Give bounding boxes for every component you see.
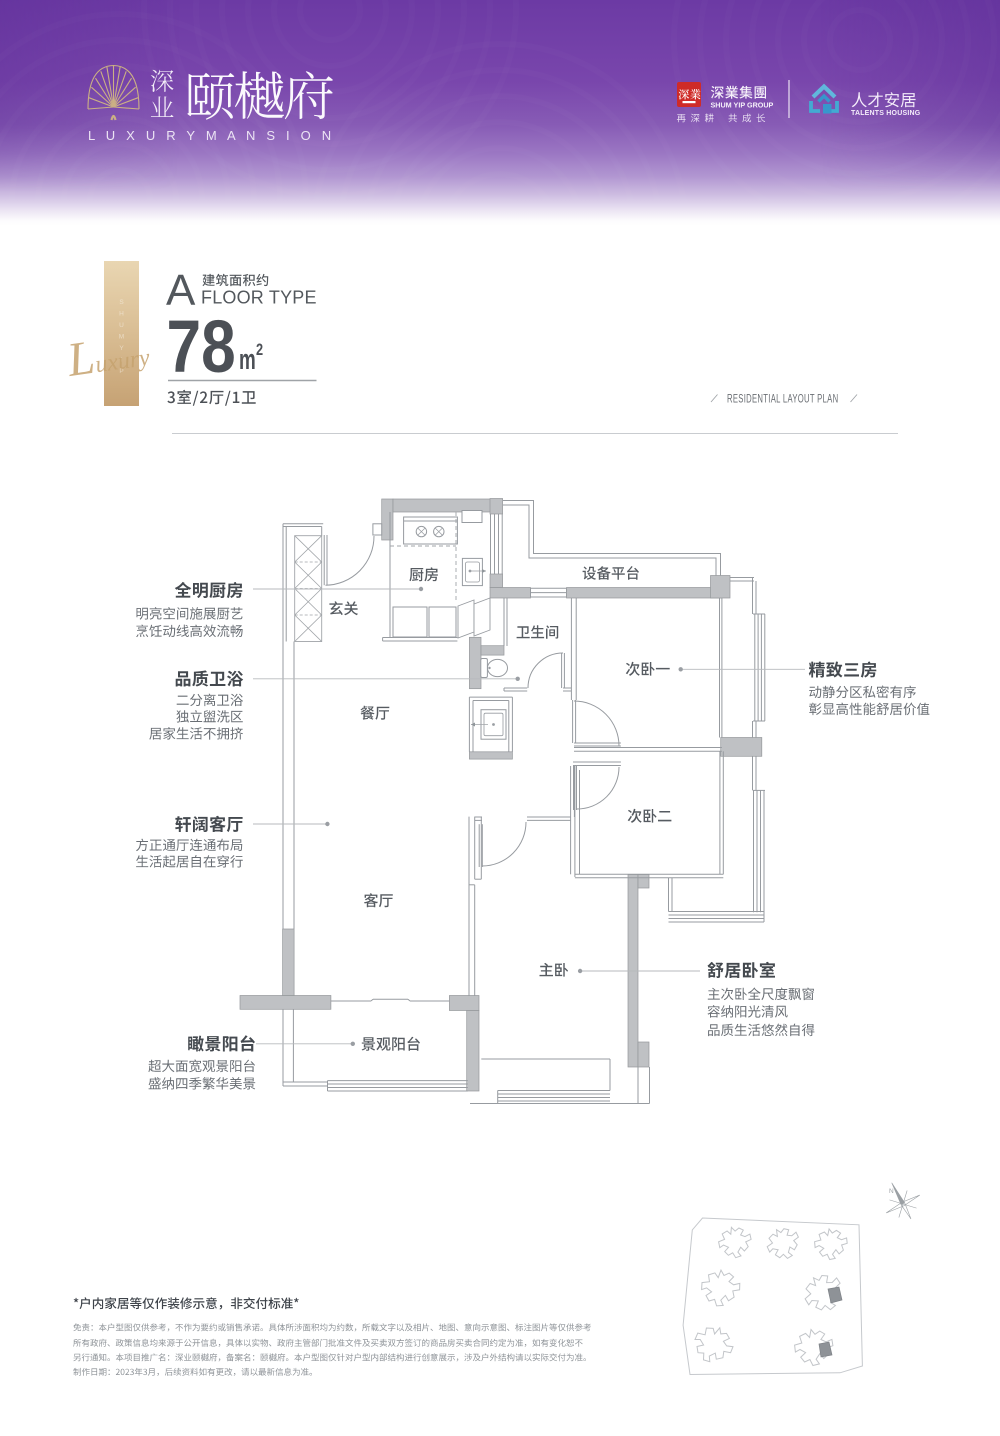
svg-text:L U X U R Y M A N S I O N: L U X U R Y M A N S I O N: [88, 128, 335, 143]
svg-text:FLOOR TYPE: FLOOR TYPE: [201, 288, 317, 308]
svg-text:2: 2: [256, 340, 263, 359]
svg-text:SHUM YIP GROUP: SHUM YIP GROUP: [711, 101, 774, 110]
svg-text:H: H: [119, 311, 124, 318]
svg-text:M: M: [119, 334, 124, 341]
svg-text:78: 78: [167, 306, 236, 388]
svg-text:RESIDENTIAL LAYOUT PLAN: RESIDENTIAL LAYOUT PLAN: [727, 393, 838, 406]
svg-text:N: N: [889, 1188, 894, 1195]
svg-text:TALENTS HOUSING: TALENTS HOUSING: [851, 110, 921, 117]
svg-text:S: S: [119, 299, 124, 306]
svg-text:m: m: [239, 344, 256, 376]
svg-text:U: U: [119, 322, 124, 329]
